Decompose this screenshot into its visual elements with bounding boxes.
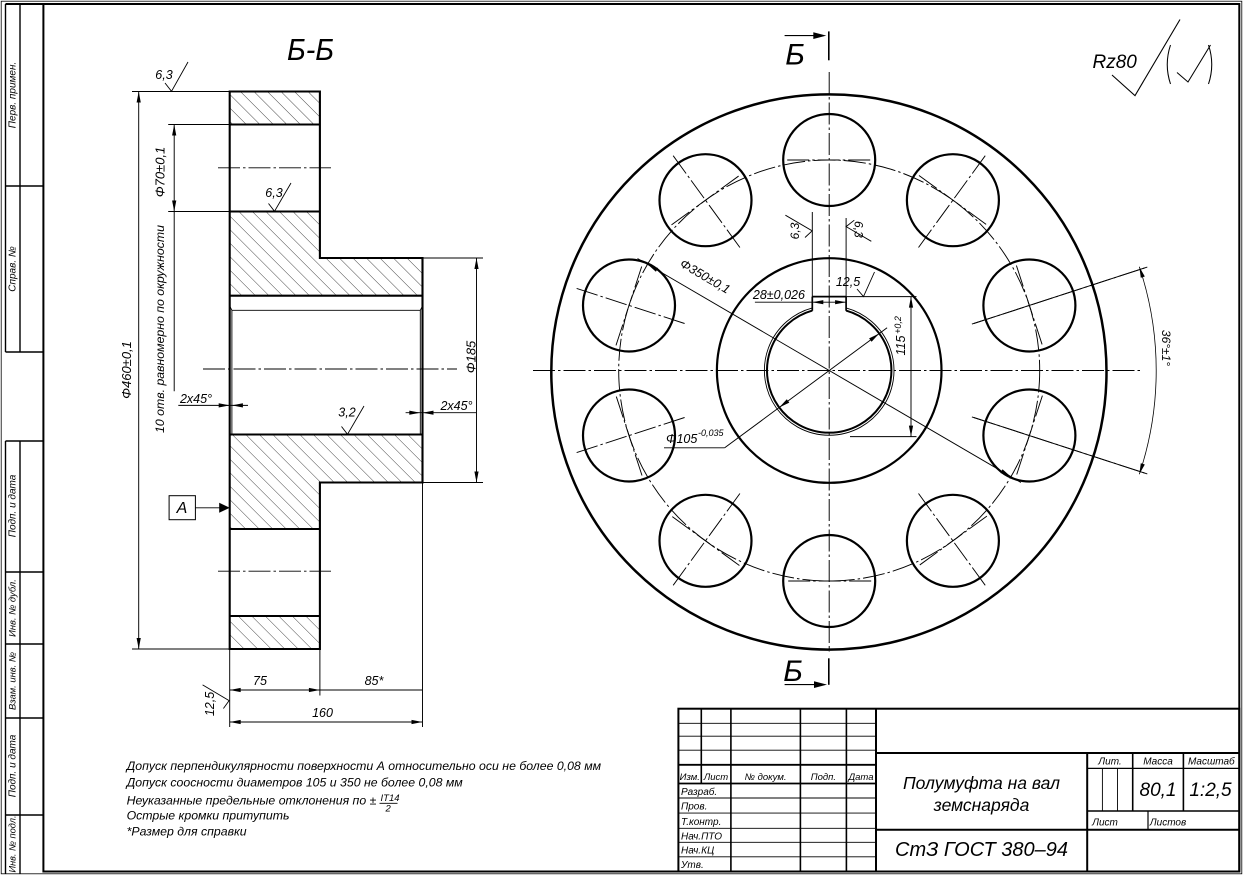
svg-text:Перв. примен.: Перв. примен. <box>8 62 19 128</box>
svg-text:1:2,5: 1:2,5 <box>1189 780 1232 801</box>
svg-text:75: 75 <box>253 674 267 688</box>
svg-text:Полумуфта на вал: Полумуфта на вал <box>903 773 1060 793</box>
svg-text:Разраб.: Разраб. <box>681 786 717 798</box>
svg-text:Нач.КЦ: Нач.КЦ <box>681 846 714 857</box>
svg-text:Φ105: Φ105 <box>666 432 697 446</box>
svg-text:Т.контр.: Т.контр. <box>681 817 721 828</box>
svg-text:160: 160 <box>312 706 333 720</box>
svg-text:Лист: Лист <box>1091 818 1118 829</box>
svg-text:Справ. №: Справ. № <box>8 246 19 292</box>
svg-text:Б: Б <box>785 39 805 72</box>
svg-text:Φ70±0,1: Φ70±0,1 <box>153 147 168 198</box>
svg-text:IT14: IT14 <box>381 793 400 804</box>
svg-text:Б-Б: Б-Б <box>287 32 334 67</box>
svg-text:Изм.: Изм. <box>680 772 700 783</box>
svg-text:2x45°: 2x45° <box>179 392 212 406</box>
svg-text:Φ185: Φ185 <box>464 340 479 373</box>
svg-text:Масштаб: Масштаб <box>1188 756 1235 768</box>
svg-text:12,5: 12,5 <box>836 275 860 289</box>
svg-text:28±0,026: 28±0,026 <box>752 288 805 302</box>
svg-text:Φ460±0,1: Φ460±0,1 <box>119 341 134 399</box>
svg-text:Допуск соосности диаметров 105: Допуск соосности диаметров 105 и 350 не … <box>125 776 464 790</box>
svg-text:Подп.: Подп. <box>811 772 836 783</box>
svg-text:3,2: 3,2 <box>338 406 355 420</box>
svg-text:6,3: 6,3 <box>155 68 172 82</box>
svg-text:-0,035: -0,035 <box>698 428 725 438</box>
svg-text:Подп. и дата: Подп. и дата <box>8 474 19 537</box>
svg-text:6,3: 6,3 <box>265 186 282 200</box>
svg-text:Взам. инв. №: Взам. инв. № <box>7 652 18 710</box>
svg-text:36°±1°: 36°±1° <box>1159 330 1173 366</box>
svg-text:А: А <box>176 500 188 517</box>
svg-text:№ докум.: № докум. <box>745 772 787 783</box>
svg-text:80,1: 80,1 <box>1140 780 1177 801</box>
svg-text:+0,2: +0,2 <box>893 316 903 334</box>
svg-text:Б: Б <box>783 655 803 688</box>
svg-text:земснаряда: земснаряда <box>933 795 1030 815</box>
svg-text:Подп. и дата: Подп. и дата <box>8 734 19 797</box>
svg-text:Нач.ПТО: Нач.ПТО <box>681 831 722 842</box>
svg-text:Масса: Масса <box>1143 757 1173 768</box>
svg-text:Дата: Дата <box>847 772 873 783</box>
svg-text:12,5: 12,5 <box>203 692 217 716</box>
svg-text:2: 2 <box>385 804 392 815</box>
svg-text:6,3: 6,3 <box>852 221 866 238</box>
svg-text:Острые кромки притупить: Острые кромки притупить <box>127 808 290 822</box>
svg-text:10 отв. равномерно по окружнос: 10 отв. равномерно по окружности <box>153 225 167 433</box>
svg-text:Допуск перпендикулярности пове: Допуск перпендикулярности поверхности А … <box>125 759 602 773</box>
svg-text:*Размер для справки: *Размер для справки <box>127 825 247 839</box>
svg-text:115: 115 <box>894 335 908 355</box>
svg-text:Инв. № подл.: Инв. № подл. <box>8 815 18 872</box>
svg-text:Утв.: Утв. <box>680 860 704 871</box>
svg-text:Лист: Лист <box>703 772 729 783</box>
svg-text:6,3: 6,3 <box>788 222 802 239</box>
svg-text:Листов: Листов <box>1149 818 1186 829</box>
svg-text:Неуказанные предельные отклоне: Неуказанные предельные отклонения по ± <box>127 793 377 807</box>
svg-text:Лит.: Лит. <box>1097 757 1121 768</box>
svg-text:2x45°: 2x45° <box>439 399 472 413</box>
svg-text:Инв. № дубл.: Инв. № дубл. <box>7 579 18 637</box>
svg-text:Пров.: Пров. <box>681 802 707 813</box>
svg-text:Rz80: Rz80 <box>1093 52 1138 73</box>
svg-text:85*: 85* <box>365 674 385 688</box>
svg-text:СтЗ ГОСТ 380–94: СтЗ ГОСТ 380–94 <box>895 839 1068 861</box>
